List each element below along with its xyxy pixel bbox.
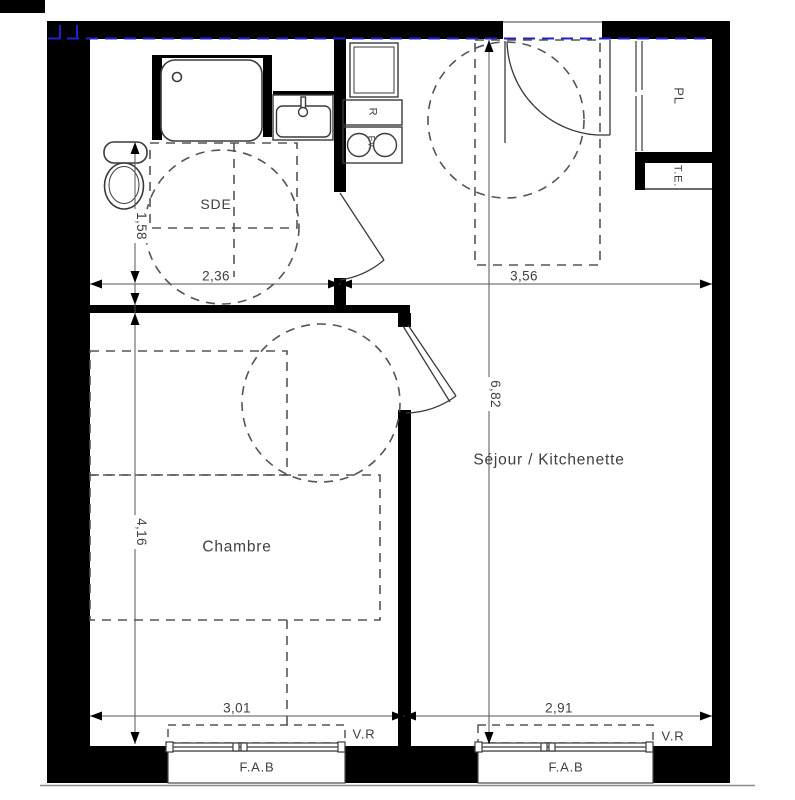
window1-end-block-left (166, 742, 173, 752)
sde-door-leaf (340, 193, 384, 260)
sejour-clearance-rect (475, 40, 600, 265)
kitchen-bowl-right-icon (374, 134, 397, 157)
dim-label-sejour-top-width: 3,56 (507, 269, 541, 283)
sde-clearance-rect (150, 143, 297, 228)
dim-label-sde-width: 2,36 (199, 269, 233, 283)
wall-bottom-right (653, 746, 729, 783)
wall-te-left-stub (635, 152, 645, 190)
arrow-158-bottom (131, 271, 140, 283)
toilet (104, 142, 147, 209)
wall-closet-bottom-bar (635, 152, 712, 163)
shutter-label-2: V.R (662, 730, 685, 743)
wall-sde-right-lower (334, 278, 346, 305)
window1-end-block-right (338, 742, 345, 752)
window1-glazing (166, 742, 345, 752)
arrow-236-left (90, 280, 102, 289)
floor-plan-drawing (0, 0, 795, 800)
wall-bottom-middle (345, 746, 478, 783)
window2-center-block-2 (549, 743, 555, 751)
chambre-door-leaf-2 (408, 325, 456, 396)
arrow-682-top (485, 40, 494, 52)
washbasin (273, 95, 333, 140)
arrow-301-left (90, 712, 102, 721)
arrow-356-right (700, 280, 712, 289)
wall-sde-chambre-divider (88, 305, 410, 313)
wall-right (712, 21, 730, 783)
room-label-sejour: Séjour / Kitchenette (473, 452, 624, 468)
window2-center-block-1 (541, 743, 547, 751)
sejour-turning-circle (428, 42, 584, 198)
walls (0, 0, 730, 783)
kitchen-unit-top (350, 43, 398, 97)
chambre-turning-circle (242, 324, 400, 482)
window1-shutter-box (168, 725, 345, 743)
window2-glazing (475, 742, 653, 752)
dim-label-sde-depth: 1,58 (134, 209, 148, 243)
arrow-291-right (700, 712, 712, 721)
arrow-416-top-b (131, 313, 140, 325)
dim-label-chambre-width: 3,01 (220, 701, 254, 715)
window-type-label-2: F.A.B (548, 761, 583, 774)
wall-top-right-of-entrance (602, 21, 729, 39)
wall-sde-right-upper (334, 39, 346, 192)
dim-label-sejour-bottom-width: 2,91 (542, 701, 576, 715)
window2-end-block-left (475, 742, 482, 752)
wall-bottom-left (47, 746, 168, 783)
wall-top-left-stub (0, 0, 45, 13)
wall-top-left-of-entrance (47, 21, 503, 39)
arrow-416-bottom (131, 732, 140, 744)
window1-center-block-2 (241, 743, 247, 751)
dim-label-sejour-length: 6,82 (488, 377, 502, 411)
fridge-label: R (367, 108, 378, 117)
closet-label: PL (673, 87, 686, 105)
arrow-682-bottom (485, 732, 494, 744)
window2-shutter-box (478, 725, 653, 743)
shower (152, 55, 272, 141)
window-type-label-1: F.A.B (239, 761, 274, 774)
arrow-416-top-a (131, 293, 140, 305)
room-label-sde: SDE (200, 197, 231, 211)
room-label-chambre: Chambre (202, 539, 271, 555)
window1-center-block-1 (233, 743, 239, 751)
washbasin-faucet-icon (299, 108, 308, 117)
sde-door-swing-arc (340, 260, 384, 280)
dim-label-chambre-length: 4,16 (134, 515, 148, 549)
wall-chambre-sejour-upper-stub (398, 313, 411, 327)
shutter-label-1: V.R (353, 728, 376, 741)
window2-end-block-right (646, 742, 653, 752)
washbasin-faucet-stem (301, 97, 306, 108)
wall-left (47, 21, 90, 746)
wall-chambre-sejour-lower (398, 410, 411, 746)
sink-label: Év. (367, 136, 376, 151)
toilet-cistern (104, 142, 147, 163)
kitchen-unit-top-inner (354, 47, 394, 93)
chambre-door-leaf-1 (403, 326, 450, 402)
shower-right-wall (263, 55, 272, 137)
chambre-bed-rect (90, 351, 287, 475)
floor-plan: SDE Chambre Séjour / Kitchenette PL T.E.… (0, 0, 795, 800)
electrical-panel-label: T.E. (672, 165, 683, 187)
